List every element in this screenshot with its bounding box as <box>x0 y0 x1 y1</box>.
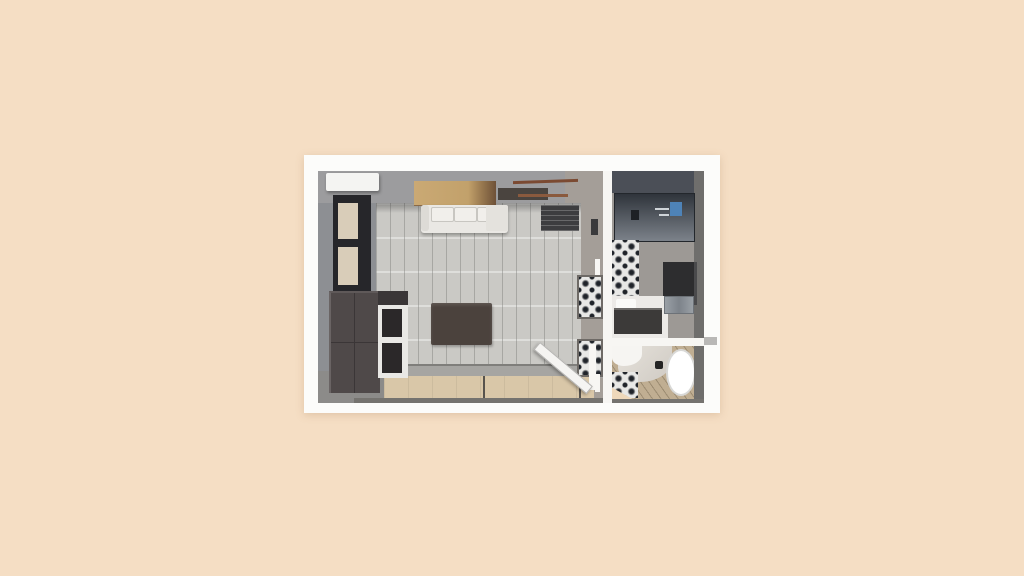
shower-faucet <box>655 208 669 210</box>
bathroom-accessories <box>664 296 694 314</box>
sofa-arm <box>421 205 429 231</box>
shower-faucet <box>659 214 669 216</box>
drain-fixture <box>655 361 663 369</box>
bathtub[interactable] <box>666 349 696 396</box>
blue-frame <box>670 202 682 216</box>
wall-end-cap <box>704 337 717 345</box>
window-pane <box>338 203 358 239</box>
cabinet-cavity <box>382 309 402 337</box>
bathtub-right-wall <box>694 346 704 403</box>
shower-mirror[interactable] <box>614 193 695 242</box>
sofa-cushion <box>431 207 454 222</box>
floorplan-render <box>304 155 720 413</box>
wall-shelf[interactable] <box>518 194 568 197</box>
sofa-cushion <box>454 207 477 222</box>
shelf-cabinet[interactable] <box>378 305 408 378</box>
rug[interactable] <box>431 303 492 345</box>
partition-wall-horizontal <box>603 338 704 346</box>
bottom-wall-edge <box>612 399 704 403</box>
room-bathroom <box>612 171 704 338</box>
window-pane <box>338 247 358 285</box>
sofa-chaise[interactable] <box>486 205 508 231</box>
partition-wall-vertical <box>603 171 612 403</box>
room-bathtub <box>612 346 704 403</box>
wood-sideboard[interactable] <box>414 181 496 206</box>
shower-handle <box>631 210 639 220</box>
panel-seam <box>483 376 485 398</box>
bathroom-right-wall <box>694 171 704 338</box>
walkway-panels <box>384 376 594 398</box>
wall-art[interactable] <box>591 219 598 235</box>
tile-niche <box>577 275 603 319</box>
wardrobe[interactable] <box>329 291 380 393</box>
cabinet-cavity <box>382 343 402 373</box>
vanity-counter[interactable] <box>614 308 662 334</box>
clothes-rack[interactable] <box>541 205 579 231</box>
bathroom-top-wall <box>612 171 704 193</box>
design-canvas[interactable] <box>0 0 1024 576</box>
shelf-cabinet-top <box>378 291 408 305</box>
room-living <box>318 171 603 403</box>
window[interactable] <box>333 195 371 291</box>
bottom-wall-edge <box>354 398 603 403</box>
air-conditioner[interactable] <box>326 173 379 191</box>
